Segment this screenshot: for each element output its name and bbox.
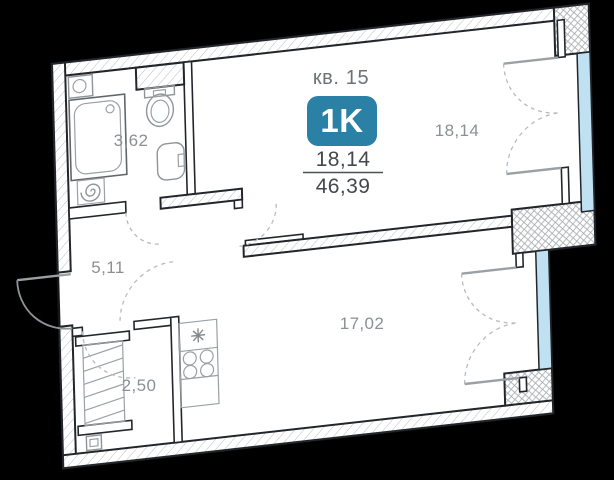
label-living-room-area: 18,14 (435, 121, 480, 140)
wall-upper-loggia-b (561, 167, 569, 204)
badge-apartment-type-label: 1K (320, 102, 363, 139)
label-wardrobe-area: 2,50 (122, 376, 157, 395)
label-apartment-number: кв. 15 (313, 67, 369, 89)
wall-upper-loggia-a (557, 20, 565, 58)
corner-block-bottom-right (504, 368, 553, 405)
floorplan-canvas: кв. 15 1K 18,14 46,39 3,62 5,11 2,50 17,… (0, 0, 614, 480)
wall-stub-corridor (234, 200, 242, 209)
apartment-plan (11, 4, 600, 473)
wall-lower-loggia-a (516, 253, 523, 268)
label-area-living: 18,14 (316, 148, 371, 171)
label-area-total: 46,39 (316, 175, 371, 198)
wall-closet-top-left (72, 327, 82, 336)
wall-lower-loggia-b (519, 377, 526, 392)
floorplan-page: кв. 15 1K 18,14 46,39 3,62 5,11 2,50 17,… (0, 0, 614, 480)
label-hallway-area: 5,11 (91, 258, 124, 277)
label-kitchen-living-area: 17,02 (340, 314, 385, 333)
window-lower-loggia (536, 250, 552, 370)
label-bathroom-area: 3,62 (114, 131, 149, 150)
ventilation-shaft (136, 62, 184, 89)
wall-left-lower (59, 325, 76, 468)
